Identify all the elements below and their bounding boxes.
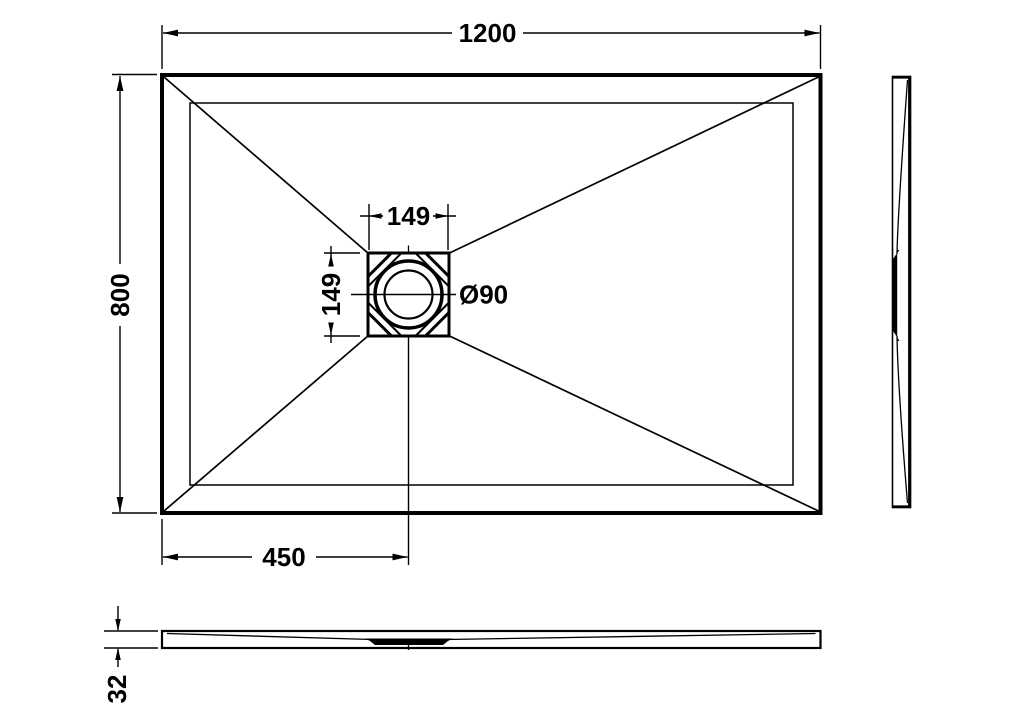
arrowhead-bottom: [117, 497, 124, 512]
arrowhead-right: [393, 554, 408, 561]
arrowhead-top: [328, 254, 334, 267]
arrowhead-down: [115, 619, 121, 631]
dim-thickness-label: 32: [102, 675, 132, 704]
front-slope-right: [446, 634, 816, 640]
technical-drawing-canvas: 1200 800 149 149 Ø90: [0, 0, 1024, 724]
drain-corner-chamfer-br-outer: [426, 313, 449, 336]
dim-overall-width-label: 1200: [459, 18, 517, 48]
side-slope-lower: [897, 336, 908, 503]
arrowhead-left: [369, 213, 382, 219]
arrowhead-up: [115, 648, 121, 660]
drain-diameter-label: Ø90: [459, 280, 508, 310]
side-drain-bump: [893, 250, 900, 341]
front-profile-outline: [162, 631, 821, 648]
arrowhead-right: [436, 213, 449, 219]
dim-drain-offset: 450: [162, 519, 408, 572]
dim-drain-height-label: 149: [316, 273, 346, 316]
arrowhead-top: [117, 76, 124, 91]
drain-assembly: [351, 246, 456, 566]
arrowhead-left: [163, 554, 178, 561]
dim-drain-width-label: 149: [387, 201, 430, 231]
dim-overall-width: 1200: [162, 18, 821, 69]
arrowhead-left: [163, 30, 178, 37]
label-drain-diameter: Ø90: [459, 280, 508, 310]
drain-corner-chamfer-tl-outer: [369, 254, 392, 277]
side-slope-upper: [897, 80, 908, 254]
dim-drain-offset-label: 450: [262, 542, 305, 572]
plan-view: [162, 75, 821, 565]
dim-overall-depth: 800: [105, 75, 157, 514]
arrowhead-bottom: [328, 323, 334, 336]
arrowhead-right: [805, 30, 820, 37]
drain-corner-chamfer-tr-outer: [426, 254, 449, 277]
shower-tray-drawing: 1200 800 149 149 Ø90: [0, 0, 1024, 724]
drain-corner-chamfer-bl-outer: [369, 313, 392, 336]
front-slope-left: [167, 634, 372, 640]
dim-overall-depth-label: 800: [105, 273, 135, 316]
dim-thickness: 32: [102, 606, 158, 703]
front-profile-view: [162, 631, 821, 650]
dim-drain-width: 149: [360, 201, 456, 250]
side-view: [893, 77, 911, 508]
